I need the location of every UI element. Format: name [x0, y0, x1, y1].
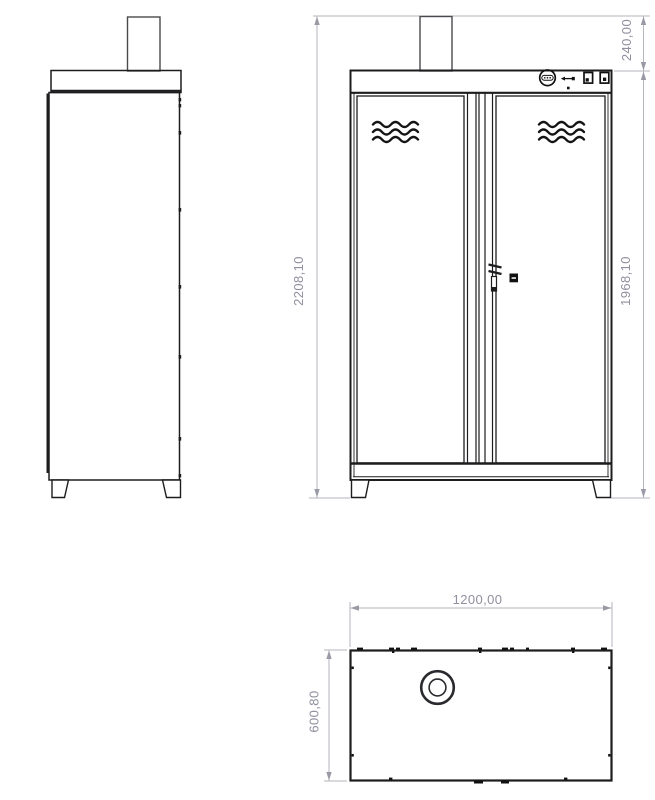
dial-icon	[540, 70, 556, 86]
dimension-arrows	[314, 17, 646, 781]
cabinet-drawing: 240,00 2208,10 1968,10 1200,00 600,80	[0, 0, 655, 800]
lock-icon	[510, 274, 519, 283]
side-leg-right	[163, 480, 181, 498]
dimension-labels: 240,00 2208,10 1968,10 1200,00 600,80	[291, 19, 634, 733]
side-chimney	[128, 17, 161, 71]
front-view	[351, 17, 612, 498]
handle-icon	[489, 265, 502, 292]
side-top-cap	[51, 71, 181, 93]
dim-label-cabinet-height: 1968,10	[618, 256, 633, 306]
dim-label-overall-height: 2208,10	[291, 256, 306, 306]
front-center-mullion	[468, 94, 493, 464]
exhaust-circle-icon	[421, 671, 454, 704]
topview-outline	[351, 651, 612, 781]
topview-ticks	[352, 648, 611, 784]
front-chimney	[420, 17, 452, 72]
side-body	[49, 93, 180, 481]
vent-wave-icon-right	[539, 122, 584, 142]
indicator-dot	[567, 87, 570, 90]
technical-drawing-canvas: 240,00 2208,10 1968,10 1200,00 600,80	[0, 0, 655, 800]
switch-icon	[584, 73, 609, 84]
side-leg-left	[52, 480, 69, 498]
vent-wave-icon-left	[373, 122, 418, 142]
side-view	[48, 17, 181, 498]
top-view	[351, 648, 612, 784]
usb-icon	[561, 77, 575, 90]
front-leg-right	[593, 480, 611, 498]
dim-label-overall-depth: 600,80	[307, 690, 322, 732]
control-panel	[540, 70, 609, 89]
front-leg-left	[352, 480, 370, 498]
front-door-left	[357, 96, 464, 463]
dim-label-stack-height: 240,00	[619, 19, 634, 61]
dim-label-overall-width: 1200,00	[453, 592, 503, 607]
